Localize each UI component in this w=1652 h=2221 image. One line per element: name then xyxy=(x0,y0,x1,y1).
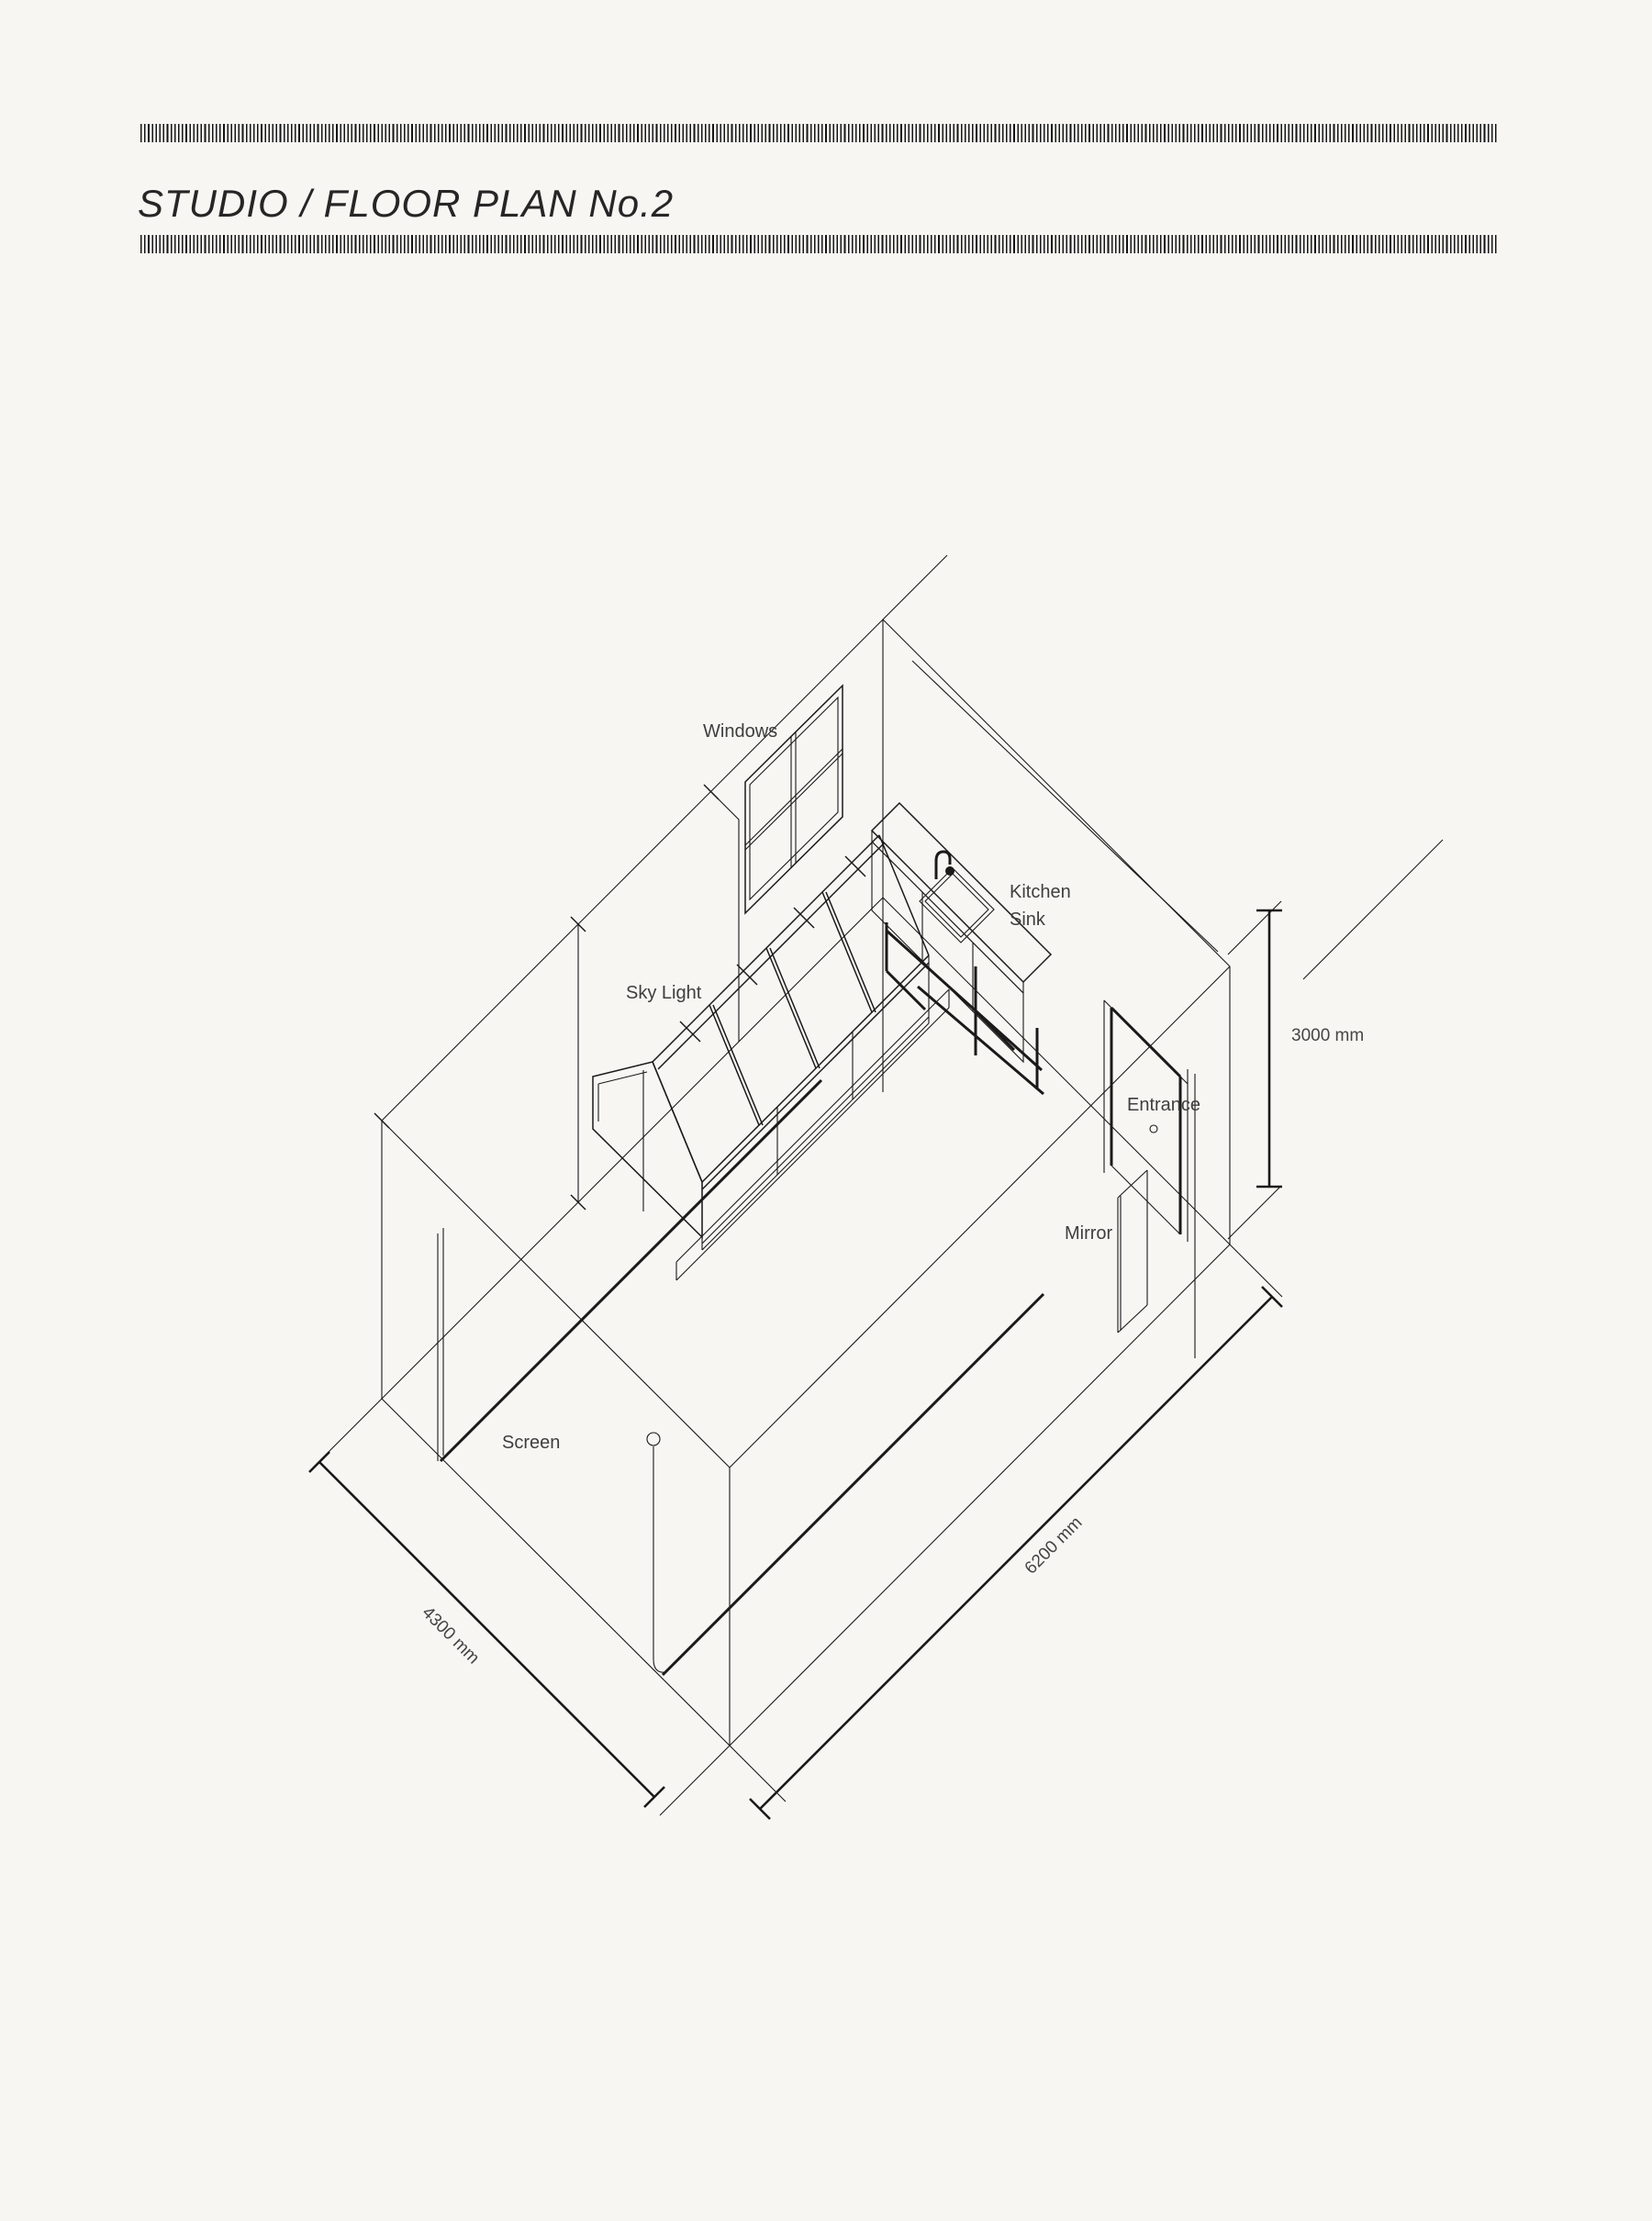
dimension-4300-extension-lines xyxy=(313,1399,730,1815)
skylight-gable-end xyxy=(593,1062,702,1237)
construction-line-top-right xyxy=(1303,840,1443,979)
label-sky-light: Sky Light xyxy=(626,983,702,1003)
wall-top-edge-line xyxy=(912,661,1218,952)
dimension-4300: 4300 mm xyxy=(309,1399,730,1815)
screen-case-bar xyxy=(441,1080,821,1461)
floor-plane-outline xyxy=(382,555,1230,1468)
room-shell xyxy=(374,555,1443,1746)
door-handle xyxy=(1150,1125,1157,1133)
skylight-back-glazing-stubs xyxy=(680,856,865,1042)
faucet-gooseneck xyxy=(936,852,950,879)
dimension-4300-label: 4300 mm xyxy=(418,1603,483,1669)
screen-pull-ring xyxy=(647,1433,660,1445)
mirror-frame xyxy=(1118,1170,1147,1333)
kitchen-counter xyxy=(872,803,1051,1094)
skylight-front-wall xyxy=(702,955,929,1250)
skylight-base-platform xyxy=(676,989,949,1280)
sink-basin-outer xyxy=(920,868,994,943)
dimension-3000-extension-lines xyxy=(1228,901,1281,1239)
screen-case-end xyxy=(438,1228,443,1461)
window-jamb-projection-line xyxy=(711,792,739,1042)
window-unit xyxy=(745,686,843,913)
label-sink: Sink xyxy=(1010,910,1046,930)
dimension-4300-line xyxy=(319,1462,654,1797)
corner-drop-lines xyxy=(382,619,1230,1746)
skylight-unit xyxy=(593,835,949,1280)
dimension-3000: 3000 mm xyxy=(1228,901,1364,1239)
label-mirror: Mirror xyxy=(1065,1223,1113,1244)
window-mullion-rail xyxy=(745,749,843,850)
label-kitchen: Kitchen xyxy=(1010,882,1071,902)
window-outer-frame xyxy=(745,686,843,913)
dimension-6200-line xyxy=(760,1297,1272,1809)
dimension-6200-extension-lines xyxy=(730,1244,1282,1802)
label-windows: Windows xyxy=(703,721,777,742)
screen-fabric-bottom-bar xyxy=(663,1294,1044,1675)
label-screen: Screen xyxy=(502,1433,560,1453)
floor-plan-drawing: 4300 mm 6200 mm 3000 mm Windows Sky Ligh… xyxy=(0,0,1652,2221)
skylight-glazing-bars xyxy=(709,892,876,1125)
projection-screen xyxy=(438,1080,1044,1675)
door-bottom-edge xyxy=(1111,1166,1180,1234)
label-entrance: Entrance xyxy=(1127,1095,1200,1115)
dimension-6200-label: 6200 mm xyxy=(1021,1513,1087,1579)
screen-pull-cord xyxy=(653,1446,666,1672)
dimension-3000-label: 3000 mm xyxy=(1291,1026,1364,1045)
counter-door-panels xyxy=(922,892,973,1011)
mirror-panel xyxy=(1118,1170,1147,1333)
page: { "header": { "title": "STUDIO / FLOOR P… xyxy=(0,0,1652,2221)
base-slab-outline xyxy=(382,898,1230,1746)
faucet-spout-dot xyxy=(945,866,954,876)
